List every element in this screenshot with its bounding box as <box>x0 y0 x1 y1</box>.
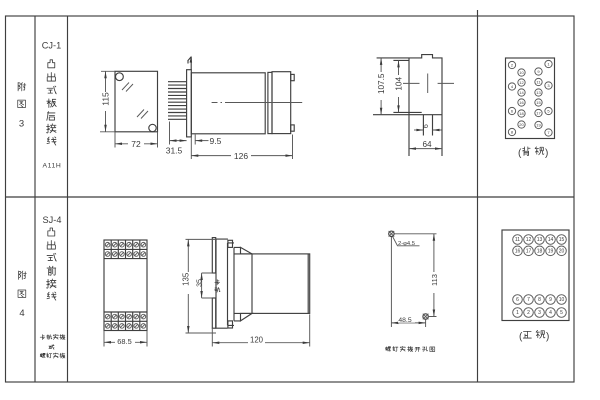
svg-text:12: 12 <box>519 80 524 85</box>
svg-text:16: 16 <box>515 248 521 254</box>
svg-text:17: 17 <box>536 111 541 116</box>
svg-text:20: 20 <box>559 248 565 254</box>
svg-text:72: 72 <box>131 139 141 149</box>
svg-text:120: 120 <box>250 335 264 344</box>
svg-text:A11H: A11H <box>43 163 62 170</box>
svg-text:7: 7 <box>527 297 530 303</box>
svg-text:9: 9 <box>549 297 552 303</box>
svg-text:107.5: 107.5 <box>377 73 386 94</box>
svg-text:126: 126 <box>234 151 248 161</box>
svg-text:35: 35 <box>196 279 203 287</box>
svg-text:1: 1 <box>516 310 519 316</box>
svg-text:): ) <box>545 148 548 159</box>
svg-text:12: 12 <box>526 237 532 243</box>
svg-text:13: 13 <box>537 237 543 243</box>
svg-text:2: 2 <box>527 310 530 316</box>
svg-text:19: 19 <box>548 248 554 254</box>
svg-text:10: 10 <box>519 70 524 75</box>
svg-text:13: 13 <box>536 90 541 95</box>
svg-text:11: 11 <box>515 237 520 243</box>
svg-text:31.5: 31.5 <box>166 146 183 156</box>
svg-text:48.5: 48.5 <box>398 317 411 324</box>
svg-text:4: 4 <box>549 310 552 316</box>
svg-text:5: 5 <box>560 310 563 316</box>
svg-text:19: 19 <box>536 123 541 128</box>
svg-text:8: 8 <box>538 297 541 303</box>
svg-text:SJ-4: SJ-4 <box>43 215 62 225</box>
svg-text:14: 14 <box>548 237 554 243</box>
svg-text:4: 4 <box>19 308 24 319</box>
svg-text:3: 3 <box>538 310 541 316</box>
svg-text:18: 18 <box>537 248 543 254</box>
svg-text:15: 15 <box>536 100 541 105</box>
svg-text:3: 3 <box>19 119 24 130</box>
svg-text:135: 135 <box>181 272 190 286</box>
svg-text:20: 20 <box>519 122 524 127</box>
svg-text:14: 14 <box>519 90 524 95</box>
svg-text:113: 113 <box>430 274 439 286</box>
svg-text:115: 115 <box>101 92 111 106</box>
svg-text:15: 15 <box>559 237 565 243</box>
svg-text:6: 6 <box>423 124 430 128</box>
svg-text:9.5: 9.5 <box>210 136 222 146</box>
svg-text:): ) <box>546 332 549 343</box>
svg-text:10: 10 <box>559 297 565 303</box>
svg-text:104: 104 <box>395 77 404 91</box>
svg-text:17: 17 <box>526 248 532 254</box>
svg-text:64: 64 <box>422 140 432 149</box>
svg-text:6: 6 <box>516 297 519 303</box>
svg-text:16: 16 <box>519 100 524 105</box>
svg-text:CJ-1: CJ-1 <box>42 41 61 51</box>
svg-text:18: 18 <box>519 111 524 116</box>
svg-text:2-φ4.5: 2-φ4.5 <box>398 241 415 247</box>
svg-text:68.5: 68.5 <box>117 337 131 346</box>
